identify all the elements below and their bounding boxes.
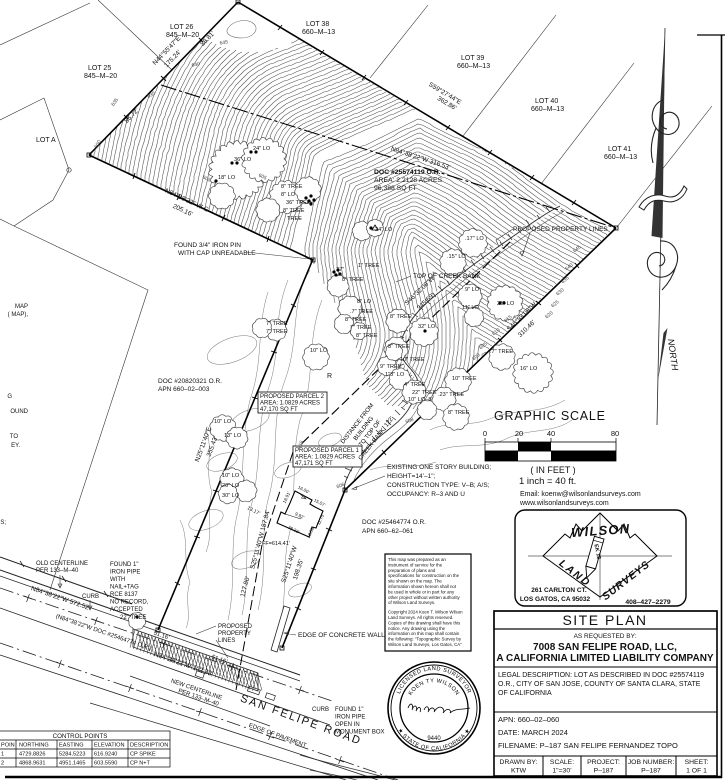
svg-text:DOC #20820321 O.R.: DOC #20820321 O.R. bbox=[158, 378, 222, 385]
svg-text:36" TREE: 36" TREE bbox=[286, 200, 311, 206]
svg-text:8" TREE: 8" TREE bbox=[356, 333, 378, 339]
svg-text:845–M–20: 845–M–20 bbox=[166, 32, 199, 39]
svg-text:24" LO: 24" LO bbox=[253, 146, 271, 152]
svg-text:NAIL+TAG: NAIL+TAG bbox=[110, 585, 139, 591]
svg-text:P–187: P–187 bbox=[641, 768, 661, 775]
svg-text:5284.5223: 5284.5223 bbox=[59, 752, 85, 758]
svg-text:A CALIFORNIA LIMITED LIABIL: A CALIFORNIA LIMITED LIABILITY COMPANY bbox=[496, 653, 714, 664]
svg-text:instrument of service for: instrument of service for the bbox=[388, 562, 443, 567]
svg-text:Land Surveys. All rights r: Land Surveys. All rights reserved. bbox=[388, 615, 453, 620]
svg-text:O.R., CITY OF SAN JOSE, C: O.R., CITY OF SAN JOSE, COUNTY OF SANTA … bbox=[498, 681, 701, 688]
svg-text:APN: 660–02–060: APN: 660–02–060 bbox=[498, 715, 559, 724]
svg-text:LOS GATOS, CA 95032: LOS GATOS, CA 95032 bbox=[520, 596, 591, 603]
svg-text:TOP OF CREEK BANK: TOP OF CREEK BANK bbox=[413, 273, 481, 280]
svg-text:7008 SAN FELIPE ROAD, LLC,: 7008 SAN FELIPE ROAD, LLC, bbox=[533, 642, 677, 653]
svg-text:9440: 9440 bbox=[427, 736, 441, 742]
svg-text:22" TREE: 22" TREE bbox=[120, 615, 146, 621]
svg-text:1: 1 bbox=[1, 752, 4, 758]
svg-text:10" LO: 10" LO bbox=[310, 348, 328, 354]
svg-text:MAP: MAP bbox=[15, 304, 28, 310]
svg-text:site shown on the map. Th: site shown on the map. The bbox=[388, 579, 442, 584]
svg-text:47,170 SQ FT: 47,170 SQ FT bbox=[260, 407, 298, 413]
svg-text:261 CARLTON CT.: 261 CARLTON CT. bbox=[531, 587, 587, 594]
svg-text:1"3" LO: 1"3" LO bbox=[385, 372, 405, 378]
svg-text:1"=30’: 1"=30’ bbox=[552, 768, 572, 775]
svg-text:ACCEPTED: ACCEPTED bbox=[110, 607, 143, 613]
svg-text:22" TREE: 22" TREE bbox=[412, 390, 437, 396]
svg-text:OCCUPANCY: R–3 AND U: OCCUPANCY: R–3 AND U bbox=[387, 491, 465, 498]
svg-text:.23" TREE: .23" TREE bbox=[438, 392, 464, 398]
svg-text:AS REQUESTED BY:: AS REQUESTED BY: bbox=[574, 633, 637, 640]
svg-text:APN 660–62–061: APN 660–62–061 bbox=[362, 528, 414, 535]
svg-text:20" LO: 20" LO bbox=[222, 483, 240, 489]
svg-text:10" LO: 10" LO bbox=[222, 473, 240, 479]
svg-text:AREA: 1.0829 ACRES: AREA: 1.0829 ACRES bbox=[295, 455, 355, 461]
svg-text:LOT 25: LOT 25 bbox=[88, 65, 111, 72]
svg-text:16" LO: 16" LO bbox=[520, 366, 538, 372]
svg-text:11" LO.: 11" LO. bbox=[462, 305, 481, 311]
svg-text:37": 37" bbox=[336, 267, 344, 273]
svg-text:specifications for construct: specifications for construction on the bbox=[388, 573, 460, 578]
svg-text:LOT 41: LOT 41 bbox=[608, 146, 631, 153]
svg-text:1 OF 1: 1 OF 1 bbox=[686, 768, 707, 775]
svg-text:660–M–13: 660–M–13 bbox=[302, 29, 335, 36]
svg-text:OUND: OUND bbox=[10, 409, 28, 415]
svg-text:PROPERTY: PROPERTY bbox=[218, 631, 251, 637]
svg-text:R: R bbox=[327, 373, 332, 380]
svg-text:.17" LO: .17" LO bbox=[465, 236, 484, 242]
svg-text:G: G bbox=[7, 394, 12, 400]
svg-text:JOB NUMBER:: JOB NUMBER: bbox=[628, 759, 675, 766]
svg-text:PROPOSED PARCEL 2: PROPOSED PARCEL 2 bbox=[260, 394, 325, 400]
svg-text:EDGE OF CONCRETE WALL: EDGE OF CONCRETE WALL bbox=[298, 632, 385, 639]
svg-text:Copies of this drawing sha: Copies of this drawing shall have this bbox=[388, 620, 461, 625]
svg-text:NO RECORD,: NO RECORD, bbox=[110, 600, 149, 606]
svg-text:Email: koenw@wilsonlandsurvey: Email: koenw@wilsonlandsurveys.com bbox=[520, 491, 641, 498]
svg-text:NORTHING: NORTHING bbox=[19, 743, 49, 749]
svg-text:PER 133–M–40: PER 133–M–40 bbox=[36, 568, 79, 574]
svg-text:OF CALIFORNIA: OF CALIFORNIA bbox=[498, 690, 552, 697]
svg-text:CP N+T: CP N+T bbox=[130, 761, 151, 767]
svg-text:616.9240: 616.9240 bbox=[94, 752, 117, 758]
svg-text:APN 660–02–003: APN 660–02–003 bbox=[158, 386, 210, 393]
svg-text:30" LO: 30" LO bbox=[222, 493, 240, 499]
svg-text:8" TREE: 8" TREE bbox=[345, 317, 367, 323]
svg-text:the following: "Topographic: the following: "Topographic Survey by bbox=[388, 637, 462, 642]
svg-text:preparation of plans and: preparation of plans and bbox=[388, 568, 436, 573]
svg-text:10" LO–8: 10" LO–8 bbox=[408, 397, 431, 403]
svg-text:www.wilsonlandsurveys.com: www.wilsonlandsurveys.com bbox=[519, 500, 609, 507]
svg-text:8" TREE: 8" TREE bbox=[390, 314, 412, 320]
svg-text:10" TREE: 10" TREE bbox=[400, 357, 425, 363]
svg-text:4868.9631: 4868.9631 bbox=[19, 761, 45, 767]
svg-text:9" TREE: 9" TREE bbox=[380, 364, 402, 370]
svg-text:OLD CENTERLINE: OLD CENTERLINE bbox=[36, 561, 88, 567]
svg-text:LEGAL DESCRIPTION: LOT AS: LEGAL DESCRIPTION: LOT AS DESCRIBED IN D… bbox=[498, 672, 704, 679]
svg-text:EASTING: EASTING bbox=[59, 743, 84, 749]
svg-text:36" LO: 36" LO bbox=[234, 157, 252, 163]
svg-text:EXISTING ONE STORY BUILDING: EXISTING ONE STORY BUILDING; bbox=[387, 464, 492, 471]
svg-text:.7" TREE: .7" TREE bbox=[350, 309, 373, 315]
svg-text:7" TREE: 7" TREE bbox=[266, 329, 288, 335]
svg-text:80: 80 bbox=[611, 429, 619, 438]
svg-text:LOT 38: LOT 38 bbox=[306, 21, 329, 28]
svg-text:TO: TO bbox=[10, 434, 19, 440]
svg-text:CONSTRUCTION TYPE: V–B; A/S: CONSTRUCTION TYPE: V–B; A/S; bbox=[387, 482, 490, 489]
svg-text:1 inch = 40 ft.: 1 inch = 40 ft. bbox=[519, 476, 576, 487]
svg-text:SCALE:: SCALE: bbox=[550, 759, 574, 766]
svg-text:POIN: POIN bbox=[1, 743, 15, 749]
svg-text:660–M–13: 660–M–13 bbox=[531, 106, 564, 113]
svg-text:HEIGHT=14’–1";: HEIGHT=14’–1"; bbox=[387, 473, 436, 480]
svg-text:CONTROL POINTS: CONTROL POINTS bbox=[53, 733, 108, 740]
svg-text:ELEVATION: ELEVATION bbox=[94, 743, 125, 749]
svg-text:96,388 SQ FT: 96,388 SQ FT bbox=[374, 185, 417, 192]
svg-text:24" LO: 24" LO bbox=[375, 227, 393, 233]
svg-text:25" LO: 25" LO bbox=[497, 301, 515, 307]
svg-text:be used in whole or in p: be used in whole or in part for any bbox=[388, 589, 455, 594]
svg-text:DATE: MARCH 2024: DATE: MARCH 2024 bbox=[498, 728, 568, 737]
svg-text:notice. Any drawing using: notice. Any drawing using the bbox=[388, 626, 446, 631]
svg-text:information shown hereon sh: information shown hereon shall not bbox=[388, 584, 457, 589]
svg-text:AREA: 1.0829 ACRES: AREA: 1.0829 ACRES bbox=[260, 401, 320, 407]
svg-text:( MAP),: ( MAP), bbox=[8, 312, 29, 318]
svg-text:603.5590: 603.5590 bbox=[94, 761, 117, 767]
svg-text:845–M–20: 845–M–20 bbox=[84, 73, 117, 80]
svg-text:other project without writt: other project without written authority bbox=[388, 595, 461, 600]
svg-text:WITH: WITH bbox=[110, 577, 125, 583]
svg-text:PROPOSED: PROPOSED bbox=[218, 624, 253, 630]
svg-text:SHEET:: SHEET: bbox=[685, 759, 709, 766]
svg-text:Copyright 2024 Koen T. Wil: Copyright 2024 Koen T. Wilson Wilson bbox=[388, 610, 463, 615]
svg-text:0: 0 bbox=[483, 429, 487, 438]
svg-text:40: 40 bbox=[547, 429, 555, 438]
svg-text:8" LO: 8" LO bbox=[281, 192, 296, 198]
svg-text:CURB: CURB bbox=[82, 594, 99, 600]
svg-text:.7" TREE: .7" TREE bbox=[490, 349, 513, 355]
svg-text:32" LO: 32" LO bbox=[418, 324, 436, 330]
svg-text:DESCRIPTION: DESCRIPTION bbox=[130, 743, 168, 749]
svg-text:8" LO: 8" LO bbox=[357, 299, 372, 305]
svg-text:660–M–13: 660–M–13 bbox=[457, 63, 490, 70]
svg-text:( IN FEET ): ( IN FEET ) bbox=[530, 465, 575, 475]
svg-text:FOUND 1": FOUND 1" bbox=[335, 707, 363, 713]
svg-text:18" LO: 18" LO bbox=[218, 175, 236, 181]
svg-text:AREA: 2.2128 ACRES: AREA: 2.2128 ACRES bbox=[374, 177, 442, 184]
svg-text:PROJECT:: PROJECT: bbox=[587, 759, 620, 766]
svg-text:information on this map sh: information on this map shall contain bbox=[388, 631, 460, 636]
svg-text:8" TREE: 8" TREE bbox=[448, 410, 470, 416]
svg-text:4951.1465: 4951.1465 bbox=[59, 761, 85, 767]
svg-text:Wilson Land Surveys, Los G: Wilson Land Surveys, Los Gatos, CA" bbox=[388, 642, 462, 647]
svg-text:LOT 40: LOT 40 bbox=[535, 98, 558, 105]
svg-text:FOUND 3/4" IRON PIN: FOUND 3/4" IRON PIN bbox=[174, 242, 241, 249]
svg-text:This map was prepared as: This map was prepared as an bbox=[388, 557, 446, 562]
svg-text:20: 20 bbox=[515, 429, 523, 438]
svg-text:GRAPHIC SCALE: GRAPHIC SCALE bbox=[494, 409, 606, 423]
svg-text:1" TREE: 1" TREE bbox=[358, 263, 380, 269]
svg-text:OPEN IN: OPEN IN bbox=[335, 722, 360, 728]
svg-text:.15" LO: .15" LO bbox=[447, 254, 466, 260]
svg-text:KTW: KTW bbox=[511, 768, 527, 775]
svg-text:4" TREE: 4" TREE bbox=[404, 382, 426, 388]
svg-text:PROPOSED PROPERTY LINES: PROPOSED PROPERTY LINES bbox=[513, 226, 608, 233]
svg-text:FF=614.41’: FF=614.41’ bbox=[262, 541, 290, 547]
svg-text:IRON PIPE: IRON PIPE bbox=[335, 715, 365, 721]
svg-text:LOT 39: LOT 39 bbox=[461, 55, 484, 62]
svg-text:WITH CAP UNREADABLE: WITH CAP UNREADABLE bbox=[178, 250, 256, 257]
svg-text:MONUMENT BOX: MONUMENT BOX bbox=[335, 730, 385, 736]
svg-text:4729.8826: 4729.8826 bbox=[19, 752, 45, 758]
svg-text:8" TREE: 8" TREE bbox=[388, 344, 410, 350]
svg-text:RCE 8137: RCE 8137 bbox=[110, 592, 138, 598]
svg-text:2: 2 bbox=[1, 761, 4, 767]
svg-text:645: 645 bbox=[219, 39, 228, 46]
svg-text:CURB: CURB bbox=[312, 707, 329, 713]
svg-text:7" TREE: 7" TREE bbox=[266, 321, 288, 327]
svg-text:SITE PLAN: SITE PLAN bbox=[562, 612, 647, 628]
svg-text:8" TREE: 8" TREE bbox=[283, 208, 305, 214]
svg-text:FILENAME: P–187 SAN FELIPE: FILENAME: P–187 SAN FELIPE FERNANDEZ TOP… bbox=[498, 741, 678, 750]
svg-text:10" TREE: 10" TREE bbox=[452, 376, 477, 382]
svg-text:10" LO: 10" LO bbox=[214, 419, 232, 425]
svg-text:DOC #25464774 O.R.: DOC #25464774 O.R. bbox=[362, 519, 426, 526]
svg-text:DRAWN BY:: DRAWN BY: bbox=[500, 759, 538, 766]
svg-text:LOT A: LOT A bbox=[36, 137, 56, 144]
svg-text:CP SPIKE: CP SPIKE bbox=[130, 752, 156, 758]
svg-text:660–M–13: 660–M–13 bbox=[604, 154, 637, 161]
svg-text:LINES: LINES bbox=[218, 638, 235, 644]
svg-text:7" TREE: 7" TREE bbox=[350, 325, 372, 331]
svg-text:of Wilson Land Surveys.: of Wilson Land Surveys. bbox=[388, 600, 435, 605]
svg-text:8" TREE: 8" TREE bbox=[281, 184, 303, 190]
svg-text:8" TREE: 8" TREE bbox=[342, 277, 364, 283]
svg-text:TREE: TREE bbox=[287, 216, 302, 222]
svg-text:9" LO: 9" LO bbox=[465, 287, 480, 293]
svg-text:P–187: P–187 bbox=[594, 768, 614, 775]
svg-text:EY.: EY. bbox=[11, 443, 20, 449]
svg-text:IRON PIPE: IRON PIPE bbox=[110, 570, 140, 576]
svg-text:PROPOSED PARCEL 1: PROPOSED PARCEL 1 bbox=[295, 448, 360, 454]
svg-text:DOC #25574119 O.R.: DOC #25574119 O.R. bbox=[374, 169, 441, 176]
svg-text:FOUND 1": FOUND 1" bbox=[110, 562, 138, 568]
svg-text:408–427–2279: 408–427–2279 bbox=[625, 599, 671, 606]
svg-text:47,171 SQ FT: 47,171 SQ FT bbox=[295, 461, 333, 467]
svg-text:LOT 26: LOT 26 bbox=[170, 24, 193, 31]
svg-text:13" LO: 13" LO bbox=[224, 433, 242, 439]
svg-text:S;: S; bbox=[0, 520, 6, 526]
